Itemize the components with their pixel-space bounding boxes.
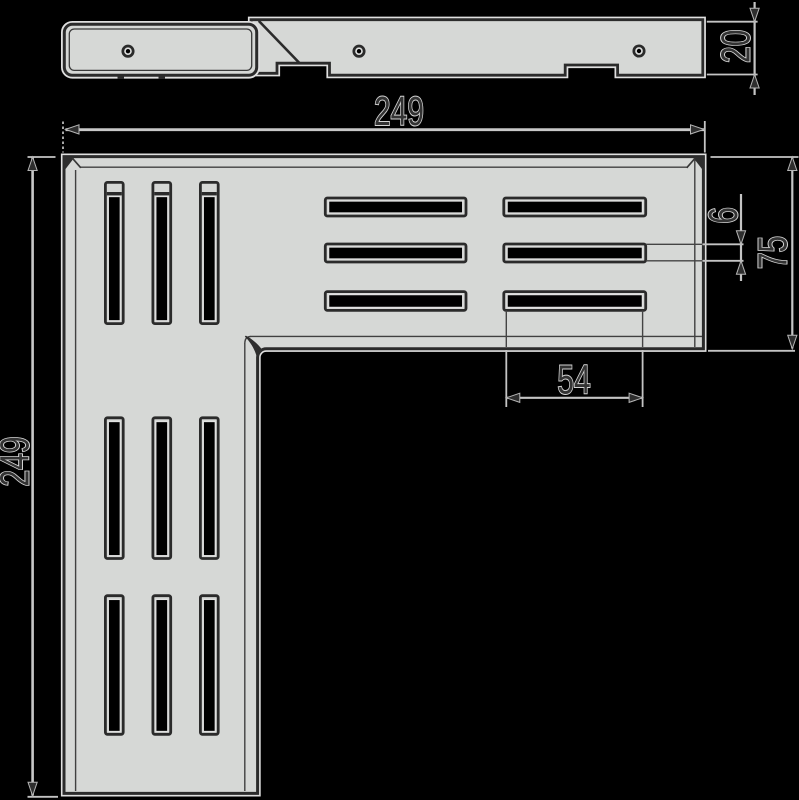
svg-text:249: 249 xyxy=(374,89,424,135)
svg-text:249: 249 xyxy=(0,437,38,487)
svg-text:75: 75 xyxy=(750,236,796,269)
svg-text:6: 6 xyxy=(701,207,747,224)
svg-text:20: 20 xyxy=(713,30,759,63)
svg-text:54: 54 xyxy=(557,357,590,403)
